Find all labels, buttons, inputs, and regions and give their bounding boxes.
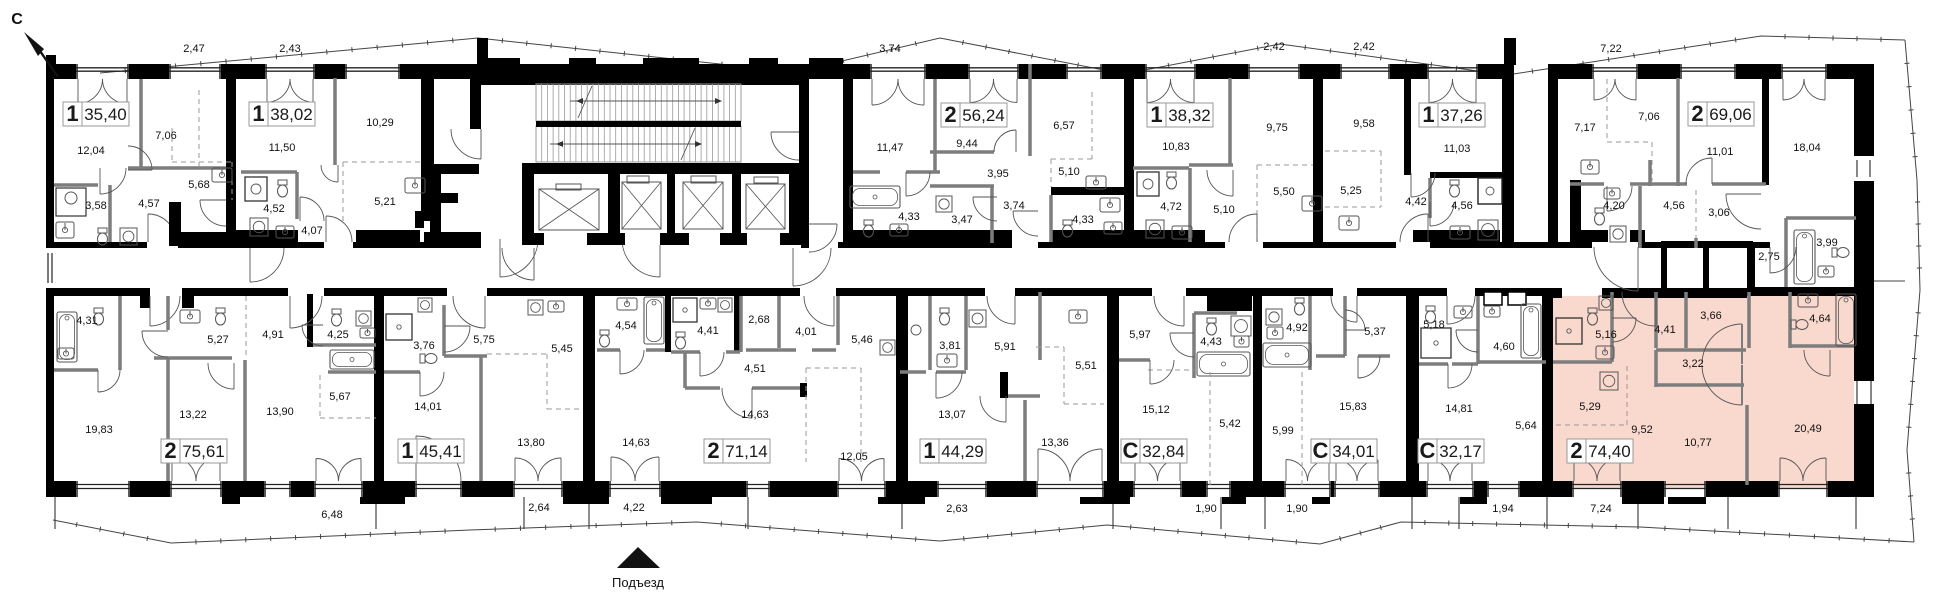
svg-text:С: С bbox=[11, 11, 23, 28]
svg-text:4,60: 4,60 bbox=[1493, 341, 1514, 353]
svg-text:3,74: 3,74 bbox=[879, 43, 900, 55]
svg-text:7,06: 7,06 bbox=[155, 130, 176, 142]
svg-text:7,22: 7,22 bbox=[1600, 43, 1621, 55]
svg-text:11,47: 11,47 bbox=[877, 142, 904, 154]
svg-text:5,99: 5,99 bbox=[1272, 425, 1293, 437]
svg-text:5,37: 5,37 bbox=[1364, 326, 1385, 338]
svg-text:13,90: 13,90 bbox=[266, 406, 294, 418]
svg-text:1,90: 1,90 bbox=[1195, 503, 1216, 515]
svg-text:13,22: 13,22 bbox=[179, 409, 207, 421]
svg-text:4,56: 4,56 bbox=[1451, 200, 1472, 212]
svg-text:4,57: 4,57 bbox=[138, 198, 159, 210]
svg-text:74,40: 74,40 bbox=[1588, 442, 1631, 461]
svg-text:4,25: 4,25 bbox=[327, 329, 348, 341]
svg-text:4,22: 4,22 bbox=[623, 502, 644, 514]
svg-text:2,42: 2,42 bbox=[1353, 41, 1374, 53]
svg-text:2: 2 bbox=[1691, 101, 1703, 126]
svg-text:19,83: 19,83 bbox=[85, 424, 113, 436]
svg-text:1: 1 bbox=[1150, 102, 1162, 127]
svg-text:10,83: 10,83 bbox=[1162, 141, 1190, 153]
svg-text:44,29: 44,29 bbox=[941, 442, 984, 461]
svg-text:2,63: 2,63 bbox=[946, 503, 967, 515]
svg-text:4,92: 4,92 bbox=[1286, 322, 1307, 334]
svg-text:5,46: 5,46 bbox=[851, 334, 872, 346]
svg-text:20,49: 20,49 bbox=[1794, 423, 1822, 435]
svg-text:11,01: 11,01 bbox=[1707, 146, 1734, 158]
svg-text:12,04: 12,04 bbox=[77, 145, 105, 157]
svg-text:4,31: 4,31 bbox=[76, 315, 97, 327]
svg-text:5,10: 5,10 bbox=[1213, 204, 1234, 216]
svg-text:5,67: 5,67 bbox=[329, 391, 350, 403]
svg-text:15,83: 15,83 bbox=[1339, 401, 1367, 413]
svg-text:2: 2 bbox=[707, 438, 719, 463]
svg-text:4,51: 4,51 bbox=[744, 363, 765, 375]
svg-text:56,24: 56,24 bbox=[962, 106, 1005, 125]
svg-text:2,42: 2,42 bbox=[1263, 41, 1284, 53]
svg-text:7,17: 7,17 bbox=[1574, 122, 1595, 134]
svg-text:5,10: 5,10 bbox=[1058, 166, 1079, 178]
svg-text:13,07: 13,07 bbox=[938, 409, 966, 421]
svg-text:5,50: 5,50 bbox=[1273, 186, 1294, 198]
svg-text:35,40: 35,40 bbox=[84, 105, 127, 124]
svg-text:2: 2 bbox=[944, 102, 956, 127]
svg-text:4,64: 4,64 bbox=[1809, 313, 1830, 325]
svg-text:4,41: 4,41 bbox=[697, 325, 718, 337]
svg-text:10,29: 10,29 bbox=[366, 117, 394, 129]
svg-text:3,81: 3,81 bbox=[939, 340, 960, 352]
svg-text:5,91: 5,91 bbox=[994, 341, 1015, 353]
svg-text:5,97: 5,97 bbox=[1129, 329, 1150, 341]
svg-text:4,20: 4,20 bbox=[1603, 200, 1624, 212]
svg-text:18,04: 18,04 bbox=[1793, 142, 1821, 154]
svg-text:2,68: 2,68 bbox=[748, 314, 769, 326]
svg-text:9,52: 9,52 bbox=[1631, 424, 1652, 436]
svg-text:11,03: 11,03 bbox=[1444, 143, 1471, 155]
svg-text:10,77: 10,77 bbox=[1684, 437, 1712, 449]
svg-text:71,14: 71,14 bbox=[725, 442, 768, 461]
svg-text:5,51: 5,51 bbox=[1075, 360, 1096, 372]
svg-text:2: 2 bbox=[1570, 438, 1582, 463]
svg-text:32,17: 32,17 bbox=[1439, 442, 1482, 461]
svg-text:5,75: 5,75 bbox=[473, 334, 494, 346]
svg-text:2,47: 2,47 bbox=[183, 43, 204, 55]
svg-text:5,68: 5,68 bbox=[188, 179, 209, 191]
svg-text:5,45: 5,45 bbox=[551, 343, 572, 355]
svg-text:1: 1 bbox=[1422, 102, 1434, 127]
svg-text:2,43: 2,43 bbox=[279, 43, 300, 55]
svg-text:5,42: 5,42 bbox=[1219, 418, 1240, 430]
svg-text:4,91: 4,91 bbox=[262, 329, 283, 341]
svg-text:1,90: 1,90 bbox=[1286, 503, 1307, 515]
svg-text:4,56: 4,56 bbox=[1663, 200, 1684, 212]
svg-text:15,12: 15,12 bbox=[1142, 404, 1170, 416]
svg-text:3,76: 3,76 bbox=[413, 340, 434, 352]
svg-text:4,01: 4,01 bbox=[795, 326, 816, 338]
svg-text:5,29: 5,29 bbox=[1579, 401, 1600, 413]
svg-text:1,94: 1,94 bbox=[1492, 503, 1513, 515]
svg-text:38,02: 38,02 bbox=[270, 105, 313, 124]
svg-text:5,18: 5,18 bbox=[1423, 319, 1444, 331]
svg-text:2: 2 bbox=[164, 438, 176, 463]
svg-text:14,63: 14,63 bbox=[622, 437, 650, 449]
svg-text:4,42: 4,42 bbox=[1405, 196, 1426, 208]
svg-text:37,26: 37,26 bbox=[1440, 106, 1483, 125]
svg-text:12,05: 12,05 bbox=[840, 451, 868, 463]
svg-text:32,84: 32,84 bbox=[1142, 442, 1185, 461]
svg-text:3,22: 3,22 bbox=[1682, 358, 1703, 370]
svg-text:34,01: 34,01 bbox=[1332, 442, 1375, 461]
svg-text:9,44: 9,44 bbox=[956, 138, 977, 150]
svg-text:38,32: 38,32 bbox=[1168, 106, 1211, 125]
svg-text:14,63: 14,63 bbox=[741, 409, 769, 421]
svg-text:6,57: 6,57 bbox=[1053, 120, 1074, 132]
svg-text:С: С bbox=[1420, 438, 1436, 463]
svg-text:5,27: 5,27 bbox=[207, 334, 228, 346]
svg-text:5,16: 5,16 bbox=[1595, 329, 1616, 341]
svg-text:1: 1 bbox=[66, 101, 78, 126]
svg-text:С: С bbox=[1123, 438, 1139, 463]
svg-text:4,41: 4,41 bbox=[1654, 324, 1675, 336]
svg-text:9,58: 9,58 bbox=[1353, 118, 1374, 130]
svg-text:5,64: 5,64 bbox=[1515, 420, 1536, 432]
svg-text:3,58: 3,58 bbox=[85, 200, 106, 212]
svg-text:3,95: 3,95 bbox=[987, 168, 1008, 180]
svg-text:3,66: 3,66 bbox=[1700, 310, 1721, 322]
svg-text:13,36: 13,36 bbox=[1041, 437, 1069, 449]
svg-text:11,50: 11,50 bbox=[269, 142, 296, 154]
svg-text:6,48: 6,48 bbox=[321, 509, 342, 521]
svg-text:4,33: 4,33 bbox=[1072, 214, 1093, 226]
svg-text:3,74: 3,74 bbox=[1003, 200, 1024, 212]
svg-text:2,75: 2,75 bbox=[1758, 251, 1779, 263]
svg-text:2,64: 2,64 bbox=[528, 502, 549, 514]
svg-text:4,72: 4,72 bbox=[1160, 201, 1181, 213]
svg-text:4,33: 4,33 bbox=[898, 211, 919, 223]
svg-text:75,61: 75,61 bbox=[182, 442, 225, 461]
svg-text:4,43: 4,43 bbox=[1200, 336, 1221, 348]
svg-text:5,21: 5,21 bbox=[374, 196, 395, 208]
svg-text:4,52: 4,52 bbox=[263, 203, 284, 215]
svg-text:7,24: 7,24 bbox=[1590, 503, 1611, 515]
svg-text:1: 1 bbox=[252, 101, 264, 126]
svg-text:4,54: 4,54 bbox=[615, 320, 636, 332]
svg-text:14,81: 14,81 bbox=[1445, 403, 1473, 415]
svg-text:3,47: 3,47 bbox=[951, 214, 972, 226]
svg-text:4,07: 4,07 bbox=[301, 225, 322, 237]
svg-text:3,99: 3,99 bbox=[1816, 237, 1837, 249]
svg-text:1: 1 bbox=[401, 438, 413, 463]
svg-text:Подъезд: Подъезд bbox=[612, 575, 664, 590]
svg-text:7,06: 7,06 bbox=[1638, 111, 1659, 123]
svg-text:45,41: 45,41 bbox=[419, 442, 462, 461]
svg-text:14,01: 14,01 bbox=[414, 401, 442, 413]
svg-text:69,06: 69,06 bbox=[1709, 105, 1752, 124]
svg-text:5,25: 5,25 bbox=[1340, 185, 1361, 197]
svg-text:С: С bbox=[1313, 438, 1329, 463]
svg-text:3,06: 3,06 bbox=[1708, 207, 1729, 219]
svg-text:13,80: 13,80 bbox=[517, 437, 545, 449]
svg-text:1: 1 bbox=[923, 438, 935, 463]
svg-text:9,75: 9,75 bbox=[1266, 122, 1287, 134]
